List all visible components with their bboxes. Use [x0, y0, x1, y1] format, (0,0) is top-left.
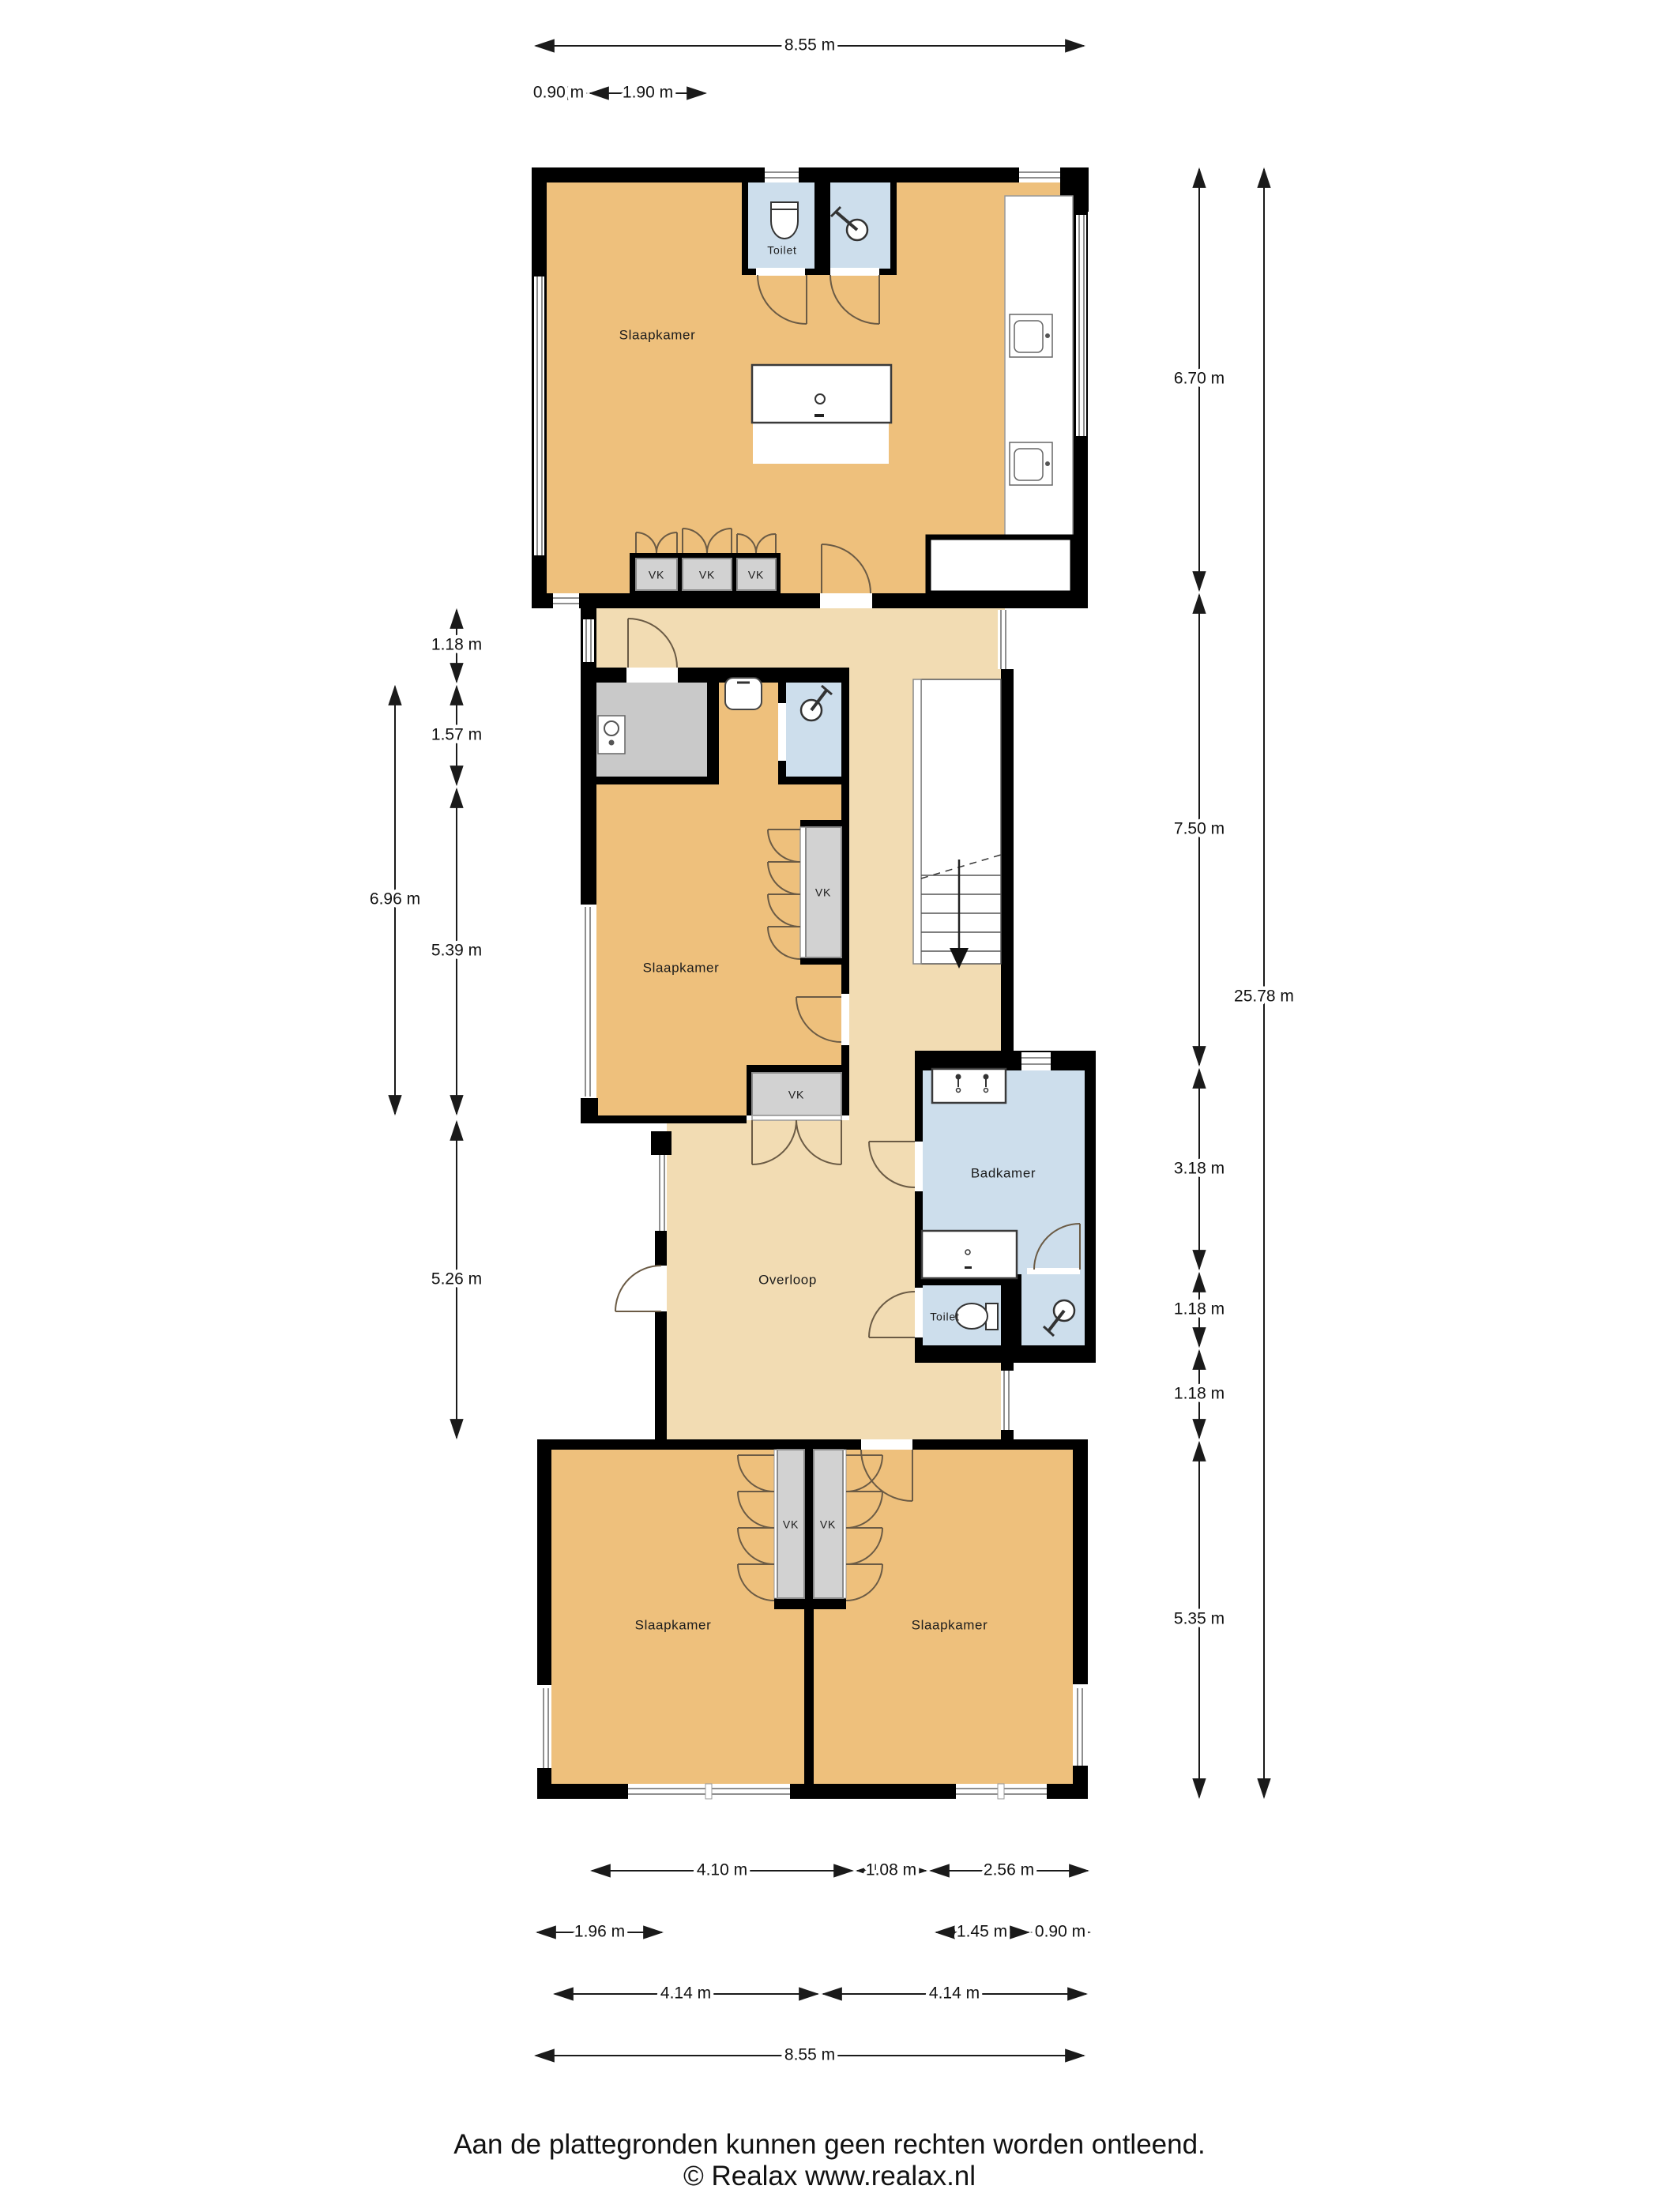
- dimension-label: 1.08 m: [866, 1861, 916, 1879]
- dimension-label: 0.90 m: [1035, 1923, 1085, 1941]
- dimension-label: 1.18 m: [1174, 1385, 1224, 1403]
- room-label-bottom-left-bedroom: Slaapkamer: [635, 1617, 712, 1632]
- dimension-label: 8.55 m: [784, 2046, 835, 2064]
- window: [1001, 1371, 1011, 1430]
- window: [628, 1784, 790, 1799]
- sink-icon: [1010, 442, 1052, 485]
- window: [583, 619, 594, 662]
- closet-label: VK: [699, 569, 715, 581]
- floorplan-drawing: Slaapkamer Toilet Slaapkamer Badkamer Ov…: [0, 0, 1659, 2212]
- window: [534, 276, 544, 555]
- room-label-landing: Overloop: [758, 1272, 817, 1287]
- dimension-label: 5.39 m: [431, 942, 482, 960]
- floorplan-page: Slaapkamer Toilet Slaapkamer Badkamer Ov…: [0, 0, 1659, 2212]
- window: [540, 1688, 551, 1768]
- bed-icon: [752, 365, 891, 464]
- dimension-label: 1.18 m: [431, 636, 482, 654]
- dimension-label: 6.70 m: [1174, 370, 1224, 388]
- top-closet-strip: [1005, 196, 1073, 545]
- closet-label: VK: [820, 1518, 836, 1531]
- closet-label: VK: [788, 1089, 804, 1101]
- room-label-middle-bedroom: Slaapkamer: [643, 960, 720, 975]
- window: [956, 1784, 1047, 1799]
- window: [998, 610, 1008, 669]
- landing-floor-south: [915, 1363, 1001, 1439]
- dimension-label: 1.57 m: [431, 726, 482, 744]
- dimensions-right: 6.70 m 7.50 m 25.78 m 3.18 m 1.18 m 1.18…: [1174, 169, 1294, 1797]
- stairs: [913, 679, 1001, 969]
- dimension-label: 4.14 m: [660, 1984, 711, 2003]
- dimension-label: 3.18 m: [1174, 1160, 1224, 1178]
- window: [765, 167, 799, 182]
- dimension-label: 1.96 m: [574, 1923, 625, 1941]
- washbasin-icon: [725, 678, 762, 709]
- window: [1076, 215, 1086, 436]
- closet-label: VK: [649, 569, 664, 581]
- closet-label: VK: [815, 886, 831, 899]
- dimensions-left: 1.18 m 1.57 m 6.96 m 5.39 m 5.26 m: [370, 610, 482, 1438]
- closet-label: VK: [748, 569, 764, 581]
- middle-shower-room: [786, 683, 841, 777]
- dimension-label: 6.96 m: [370, 890, 420, 908]
- closet-label: VK: [783, 1518, 799, 1531]
- room-label-bathroom: Badkamer: [971, 1165, 1036, 1180]
- toilet-icon: [956, 1303, 998, 1330]
- room-label-top-toilet: Toilet: [767, 244, 796, 257]
- landing-left-wall: [615, 1131, 671, 1439]
- window: [1019, 167, 1060, 182]
- dimension-label: 5.26 m: [431, 1270, 482, 1288]
- hallway-floor: [596, 608, 1005, 674]
- window: [656, 1155, 667, 1231]
- window: [1021, 1052, 1051, 1070]
- door-landing-exterior: [615, 1266, 661, 1311]
- dimension-label: 8.55 m: [784, 36, 835, 55]
- room-label-toilet: Toilet: [930, 1311, 959, 1323]
- dimension-label: 1.90 m: [623, 84, 673, 102]
- dimension-label: 2.56 m: [984, 1861, 1034, 1879]
- boiler-icon: [598, 716, 625, 754]
- dimension-label: 4.10 m: [697, 1861, 747, 1879]
- utility-room: [596, 683, 707, 777]
- footer-disclaimer: Aan de plattegronden kunnen geen rechten…: [453, 2129, 1206, 2160]
- dimension-label: 7.50 m: [1174, 820, 1224, 838]
- wall: [1001, 1430, 1014, 1439]
- dimensions-top: 8.55 m 0.90 m 1.90 m: [532, 36, 1084, 102]
- window: [1074, 1688, 1085, 1766]
- window: [553, 593, 579, 608]
- dimension-label: 1.18 m: [1174, 1300, 1224, 1319]
- dimension-label: 25.78 m: [1234, 987, 1294, 1006]
- bathtub-icon: [922, 1231, 1017, 1278]
- wall: [1001, 1363, 1014, 1371]
- dimensions-bottom: 4.10 m 1.08 m 2.56 m 1.96 m 1.45 m 0.90 …: [536, 1861, 1089, 2064]
- dimension-label: 0.90 m: [533, 84, 584, 102]
- toilet-icon: [771, 202, 798, 239]
- bathroom-sink-icon: [932, 1069, 1006, 1103]
- room-label-top-bedroom: Slaapkamer: [619, 327, 696, 342]
- room-label-bottom-right-bedroom: Slaapkamer: [912, 1617, 988, 1632]
- dimension-label: 5.35 m: [1174, 1610, 1224, 1628]
- sink-icon: [1010, 314, 1052, 357]
- window: [582, 907, 593, 1097]
- footer-copyright: © Realax www.realax.nl: [683, 2161, 976, 2191]
- dimension-label: 4.14 m: [929, 1984, 980, 2003]
- dimension-label: 1.45 m: [957, 1923, 1007, 1941]
- built-in-closet: [928, 537, 1073, 593]
